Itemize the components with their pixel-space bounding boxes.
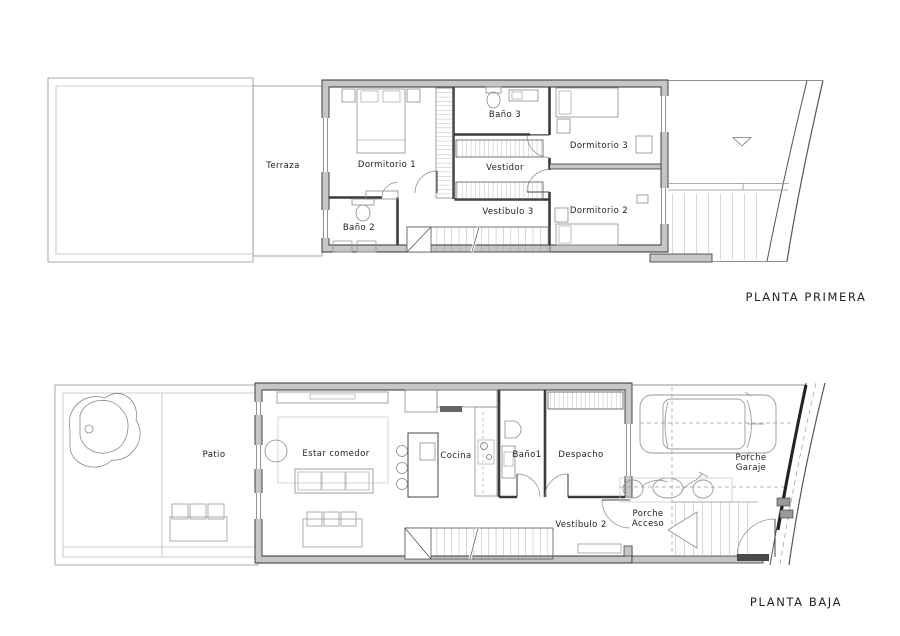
window-left-b [254, 445, 263, 469]
room-label-dormitorio1: Dormitorio 1 [358, 161, 416, 171]
plan-title-baja: PLANTA BAJA [750, 595, 842, 609]
stairs-primera [407, 227, 550, 252]
window-right-2 [659, 188, 669, 224]
access-paving [620, 478, 732, 502]
patio-area [55, 385, 258, 565]
car [640, 392, 776, 456]
room-label-bano1: Baño1 [512, 451, 541, 461]
stairs-baja [405, 528, 553, 559]
tree [69, 393, 140, 467]
exterior-right-primera [650, 81, 823, 263]
room-label-vestibulo3: Vestíbulo 3 [482, 208, 533, 218]
plan-drawing [0, 0, 900, 636]
kitchen-fittings [397, 390, 498, 497]
room-label-bano3: Baño 3 [489, 111, 521, 121]
window-left-2 [321, 210, 331, 238]
room-label-vestibulo2: Vestíbulo 2 [555, 521, 606, 531]
plan-baja-drawing [55, 383, 825, 565]
room-label-dormitorio3: Dormitorio 3 [570, 142, 628, 152]
window-right-1 [659, 96, 669, 132]
room-label-terraza: Terraza [266, 162, 300, 172]
floor-plan-sheet: Terraza Dormitorio 1 Baño 2 Baño 3 Vesti… [0, 0, 900, 636]
room-label-despacho: Despacho [558, 451, 603, 461]
window-left-c [254, 493, 263, 519]
motorcycle [623, 472, 713, 498]
room-label-porche-acceso: Porche Acceso [621, 510, 675, 530]
slope-triangle-marker [733, 138, 751, 147]
glass-door-despacho [624, 424, 634, 476]
despacho-closet [548, 392, 623, 409]
room-label-cocina: Cocina [440, 452, 471, 462]
room-label-patio: Patio [203, 451, 226, 461]
exterior-stair-baja [668, 502, 758, 557]
garage-area [620, 383, 825, 565]
window-left-1 [321, 118, 331, 172]
room-label-estar-comedor: Estar comedor [302, 450, 369, 460]
party-wall [650, 254, 712, 262]
window-left-a [254, 402, 263, 415]
room-label-bano2: Baño 2 [343, 224, 375, 234]
patio-sofa [170, 504, 227, 541]
roof-area [48, 78, 253, 262]
plan-title-primera: PLANTA PRIMERA [745, 290, 866, 304]
curved-boundary [770, 383, 825, 565]
room-label-porche-garaje: Porche Garaje [724, 454, 778, 474]
wardrobe-hatch [436, 88, 453, 198]
exterior-stair-primera [672, 194, 764, 260]
room-label-vestidor: Vestidor [486, 164, 524, 174]
living-furniture [265, 392, 388, 547]
room-label-dormitorio2: Dormitorio 2 [570, 207, 628, 217]
plan-primera-drawing [48, 78, 823, 262]
doormat [578, 544, 621, 553]
